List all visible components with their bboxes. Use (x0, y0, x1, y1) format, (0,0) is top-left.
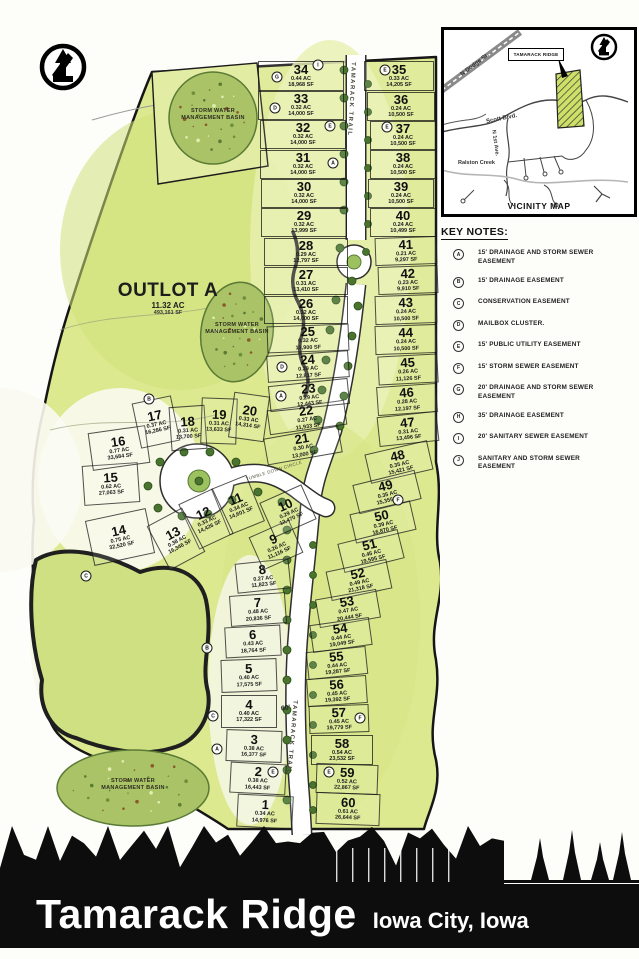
key-note-item-E: E15' PUBLIC UTILITY EASEMENT (441, 341, 635, 352)
keynote-marker-E: E (382, 122, 393, 133)
key-note-item-C: CCONSERVATION EASEMENT (441, 298, 635, 309)
key-note-item-G: G20' DRAINAGE AND STORM SEWER EASEMENT (441, 384, 635, 401)
keynote-marker-E: E (324, 767, 335, 778)
key-note-badge: H (453, 412, 464, 423)
keynote-marker-G: G (272, 72, 283, 83)
key-note-text: 15' DRAINAGE EASEMENT (478, 277, 613, 286)
key-note-text: 15' PUBLIC UTILITY EASEMENT (478, 341, 613, 350)
keynote-marker-B: B (144, 394, 155, 405)
key-note-badge: C (453, 298, 464, 309)
keynote-marker-D: D (277, 362, 288, 373)
keynote-marker-E: E (380, 65, 391, 76)
vicinity-site-polygon (556, 70, 584, 128)
vicinity-map: TAMARACK RIDGE N Dodge St. Scott Blvd. N… (441, 27, 637, 217)
key-note-text: 15' STORM SEWER EASEMENT (478, 363, 613, 372)
key-notes-panel: KEY NOTES: A15' DRAINAGE AND STORM SEWER… (441, 222, 635, 482)
keynote-markers-layer: IGDEEEAADFFEECABCB (0, 0, 440, 835)
keynote-marker-D: D (270, 103, 281, 114)
vicinity-site-tag: TAMARACK RIDGE (508, 48, 564, 61)
storm-basin-label-bottom: STORM WATER MANAGEMENT BASIN (93, 778, 173, 792)
keynote-marker-F: F (355, 713, 366, 724)
key-note-text: 15' DRAINAGE AND STORM SEWER EASEMENT (478, 249, 613, 266)
key-note-item-B: B15' DRAINAGE EASEMENT (441, 277, 635, 288)
keynote-marker-E: E (325, 121, 336, 132)
banner-title: Tamarack Ridge (36, 891, 357, 938)
key-note-badge: I (453, 433, 464, 444)
vicinity-map-caption: VICINITY MAP (444, 201, 634, 211)
key-note-item-J: JSANITARY AND STORM SEWER EASEMENT (441, 455, 635, 472)
key-note-badge: B (453, 277, 464, 288)
outlot-sqft: 493,161 SF (103, 310, 233, 317)
key-note-item-A: A15' DRAINAGE AND STORM SEWER EASEMENT (441, 249, 635, 266)
key-note-item-I: I20' SANITARY SEWER EASEMENT (441, 433, 635, 444)
keynote-marker-C: C (81, 571, 92, 582)
storm-basin-label-mid: STORM WATER MANAGEMENT BASIN (197, 322, 277, 336)
outlot-name: OUTLOT A (103, 281, 233, 301)
key-notes-title: KEY NOTES: (441, 226, 508, 240)
plat-sheet: OUTLOT A 11.32 AC 493,161 SF STORM WATER… (0, 0, 639, 959)
storm-basin-label-top: STORM WATER MANAGEMENT BASIN (173, 108, 253, 122)
key-note-item-D: DMAILBOX CLUSTER. (441, 320, 635, 331)
key-note-badge: A (453, 249, 464, 260)
north-arrow-icon (38, 42, 88, 92)
key-note-item-H: H35' DRAINAGE EASEMENT (441, 412, 635, 423)
outlot-acres: 11.32 AC (103, 301, 233, 310)
key-note-item-F: F15' STORM SEWER EASEMENT (441, 363, 635, 374)
key-note-text: 35' DRAINAGE EASEMENT (478, 412, 613, 421)
keynote-marker-A: A (328, 158, 339, 169)
outlot-label: OUTLOT A 11.32 AC 493,161 SF (103, 281, 233, 317)
key-notes-list: A15' DRAINAGE AND STORM SEWER EASEMENTB1… (441, 249, 635, 472)
key-note-text: 20' SANITARY SEWER EASEMENT (478, 433, 613, 442)
keynote-marker-A: A (276, 391, 287, 402)
key-note-badge: E (453, 341, 464, 352)
keynote-marker-E: E (268, 767, 279, 778)
key-note-badge: G (453, 384, 464, 395)
key-note-text: 20' DRAINAGE AND STORM SEWER EASEMENT (478, 384, 613, 401)
key-note-text: CONSERVATION EASEMENT (478, 298, 613, 307)
keynote-marker-C: C (208, 711, 219, 722)
banner-title-bar: Tamarack Ridge Iowa City, Iowa (0, 884, 639, 944)
key-note-text: MAILBOX CLUSTER. (478, 320, 613, 329)
keynote-marker-F: F (393, 495, 404, 506)
key-note-badge: F (453, 363, 464, 374)
keynote-marker-A: A (212, 744, 223, 755)
keynote-marker-I: I (313, 60, 324, 71)
key-note-badge: D (453, 320, 464, 331)
key-note-badge: J (453, 455, 464, 466)
keynote-marker-B: B (202, 643, 213, 654)
creek-label: Ralston Creek (458, 160, 495, 166)
key-note-text: SANITARY AND STORM SEWER EASEMENT (478, 455, 613, 472)
banner-subtitle: Iowa City, Iowa (373, 908, 529, 934)
